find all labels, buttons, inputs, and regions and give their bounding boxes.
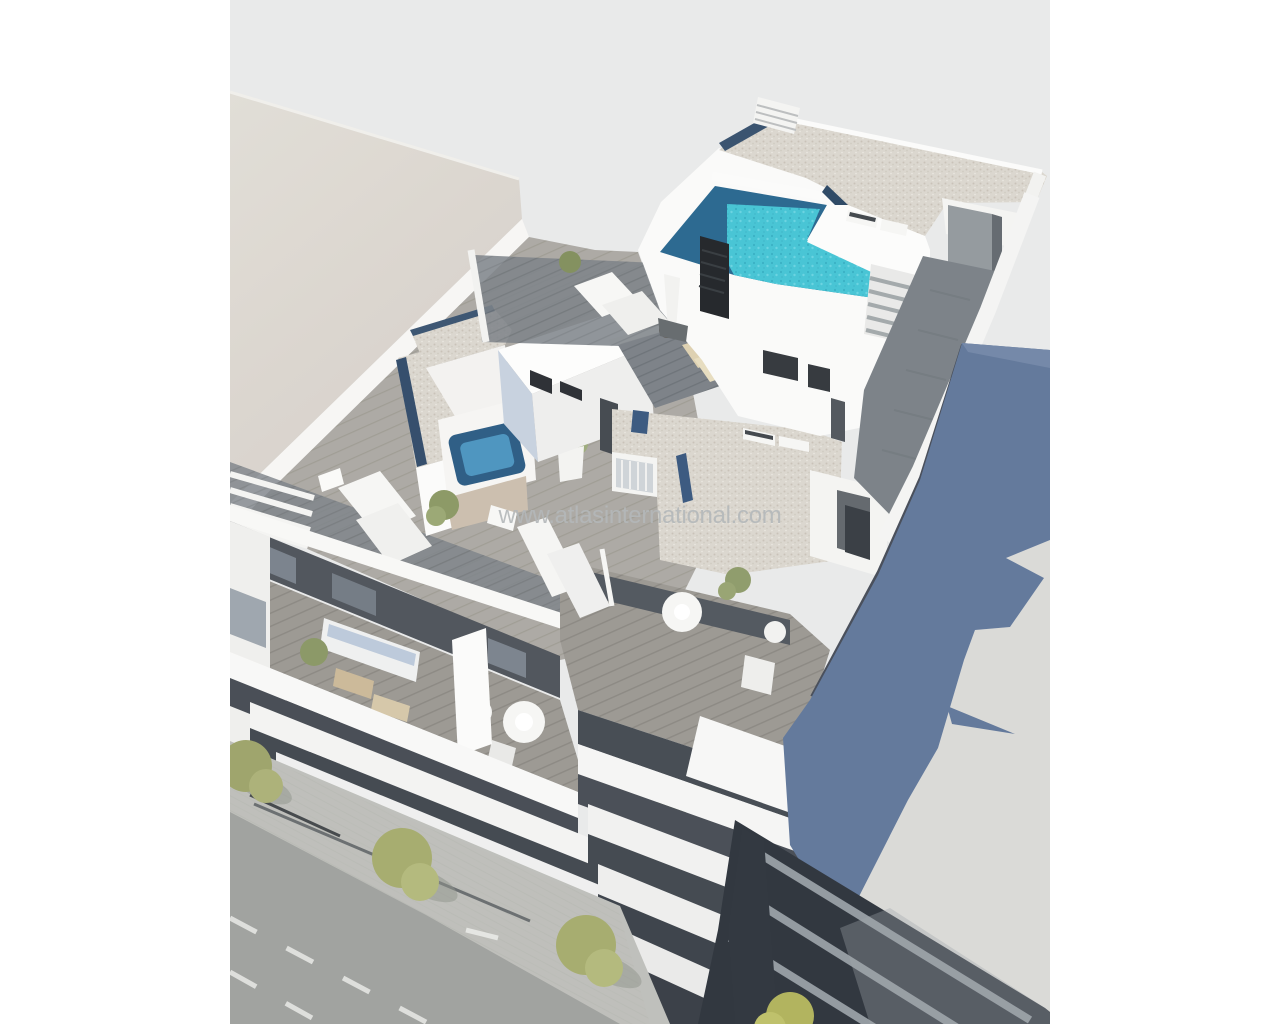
svg-text:www.atlasinternational.com: www.atlasinternational.com <box>497 502 781 529</box>
